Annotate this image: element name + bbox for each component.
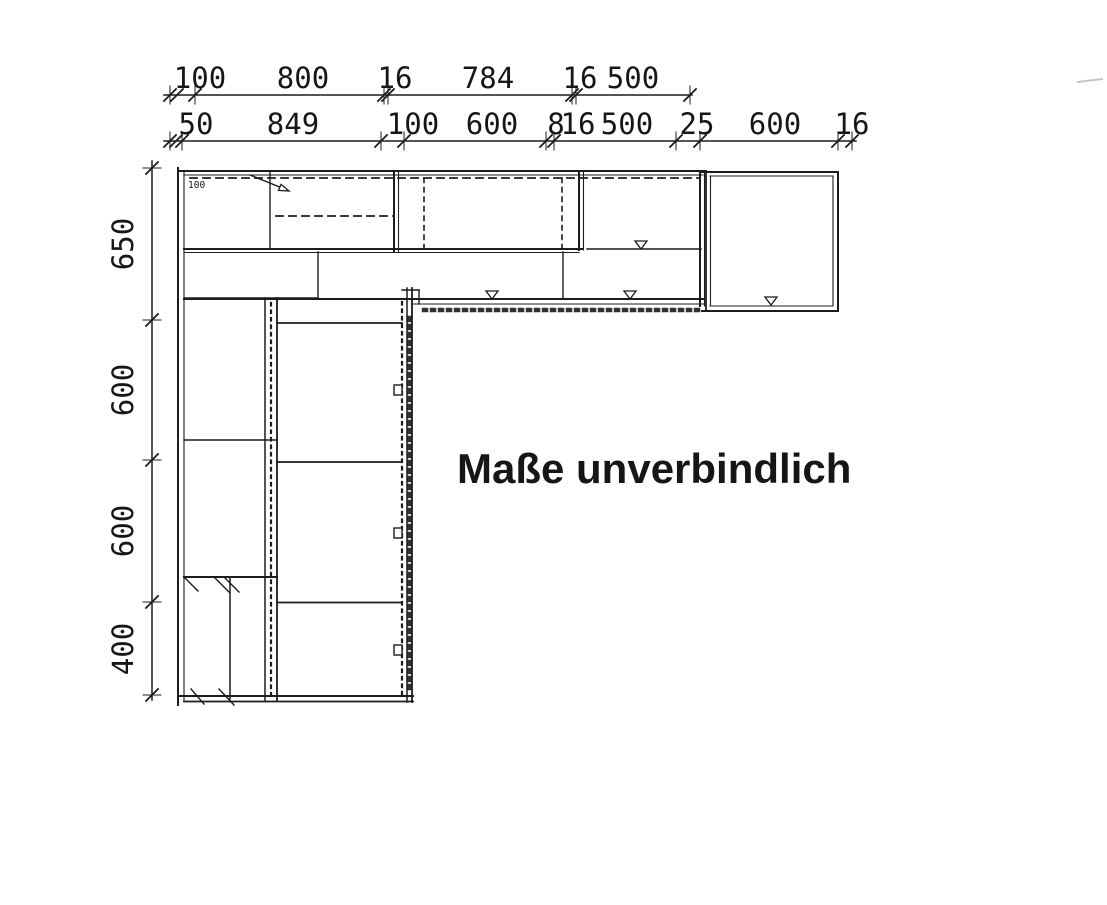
dimension-row-lower: 50 849 100 600 8 16 500 25 600 16 bbox=[164, 107, 869, 150]
kitchen-plan-drawing: 100 800 16 784 16 500 50 849 100 600 8 bbox=[0, 0, 1107, 905]
dim-label: 25 bbox=[680, 107, 715, 141]
dim-label: 16 bbox=[563, 61, 598, 95]
dim-label: 500 bbox=[607, 61, 659, 95]
disclaimer-text: Maße unverbindlich bbox=[457, 445, 851, 492]
door-swing-triangle bbox=[635, 241, 647, 249]
top-cabinet-run: 100 bbox=[184, 171, 705, 310]
kitchen-plan-page: 100 800 16 784 16 500 50 849 100 600 8 bbox=[0, 0, 1107, 905]
dim-label: 600 bbox=[106, 505, 140, 557]
dim-label: 500 bbox=[601, 107, 653, 141]
door-swing-triangle bbox=[765, 297, 777, 305]
dim-label: 16 bbox=[378, 61, 413, 95]
left-cabinet-run bbox=[178, 288, 413, 705]
dim-label: 784 bbox=[462, 61, 514, 95]
dim-label: 800 bbox=[277, 61, 329, 95]
door-handle-mark bbox=[394, 645, 402, 655]
dimension-column-left: 650 600 600 400 bbox=[106, 161, 161, 701]
corner-dim-label: 100 bbox=[188, 180, 205, 191]
dim-label: 600 bbox=[466, 107, 518, 141]
door-swing-triangle bbox=[486, 291, 498, 299]
dim-label: 600 bbox=[106, 364, 140, 416]
dim-label: 50 bbox=[179, 107, 214, 141]
door-handle-mark bbox=[394, 528, 402, 538]
door-handle-mark bbox=[394, 385, 402, 395]
dim-label: 600 bbox=[749, 107, 801, 141]
dim-label: 400 bbox=[106, 623, 140, 675]
right-wall-cabinet bbox=[702, 172, 838, 311]
leader-arrowhead bbox=[278, 184, 289, 191]
dim-label: 16 bbox=[561, 107, 596, 141]
dim-label: 16 bbox=[835, 107, 870, 141]
dimension-row-upper: 100 800 16 784 16 500 bbox=[164, 61, 696, 104]
dim-label: 650 bbox=[106, 218, 140, 270]
dim-label: 100 bbox=[174, 61, 226, 95]
dim-label: 100 bbox=[387, 107, 439, 141]
dim-label: 849 bbox=[267, 107, 319, 141]
door-swing-triangle bbox=[624, 291, 636, 299]
scan-smudge bbox=[1078, 79, 1102, 82]
